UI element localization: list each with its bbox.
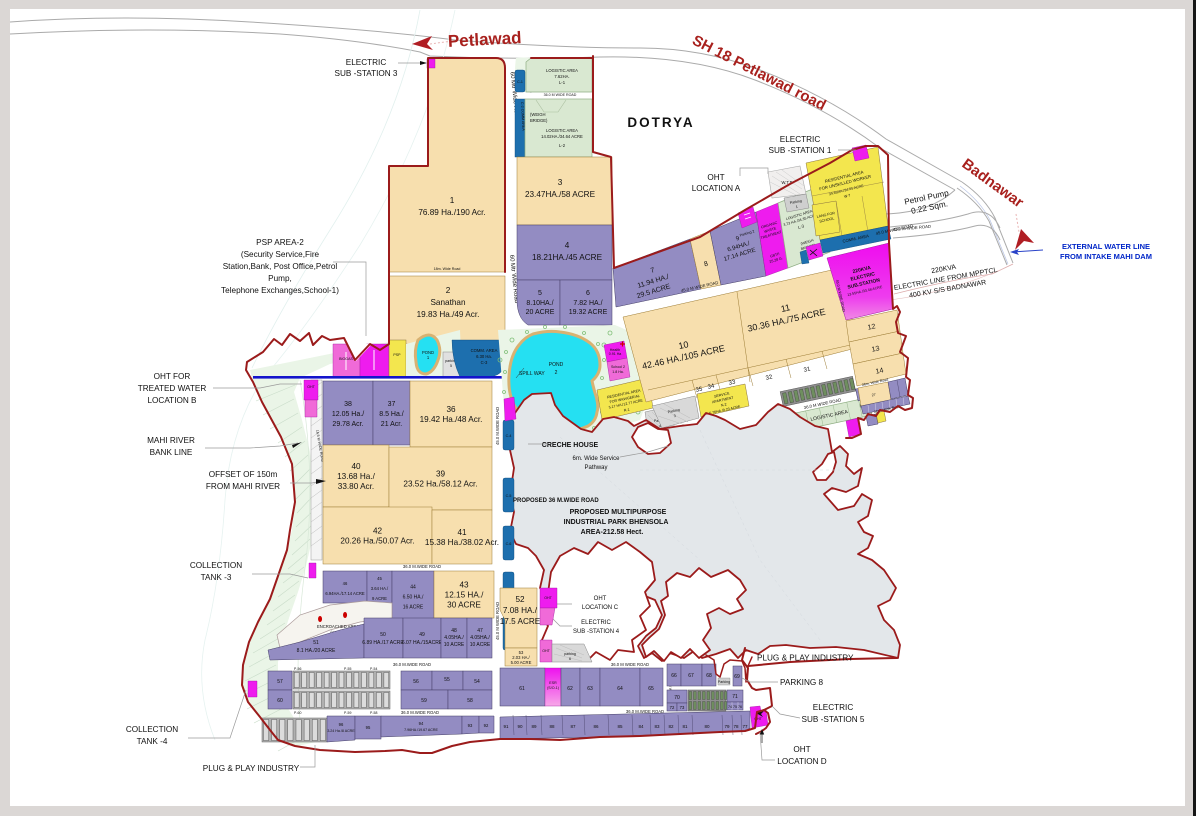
svg-text:ELECTRIC: ELECTRIC	[346, 58, 387, 67]
svg-text:67: 67	[688, 673, 694, 679]
svg-text:C-4: C-4	[506, 434, 512, 438]
svg-text:LOCATION C: LOCATION C	[582, 605, 619, 611]
svg-text:46: 46	[343, 581, 348, 586]
svg-text:5: 5	[450, 364, 452, 368]
svg-text:27: 27	[871, 393, 876, 398]
svg-text:71: 71	[732, 694, 738, 700]
svg-text:7.62HA.: 7.62HA.	[554, 74, 569, 79]
svg-text:7.96HA./19.67 ACRE: 7.96HA./19.67 ACRE	[404, 728, 438, 732]
svg-text:3.24 Ha./8 ACRE: 3.24 Ha./8 ACRE	[327, 729, 355, 733]
svg-text:CRECHE HOUSE: CRECHE HOUSE	[542, 442, 599, 449]
svg-text:P-54: P-54	[370, 667, 377, 671]
svg-text:Parking: Parking	[718, 680, 730, 684]
svg-text:80: 80	[704, 724, 710, 729]
svg-text:OHT: OHT	[594, 596, 607, 602]
svg-text:58: 58	[467, 698, 473, 704]
svg-text:59: 59	[421, 698, 427, 704]
svg-text:91: 91	[503, 724, 509, 729]
svg-text:45.0 M.WIDE ROAD: 45.0 M.WIDE ROAD	[495, 407, 500, 445]
svg-text:44: 44	[410, 585, 416, 591]
svg-text:74 75 76: 74 75 76	[728, 705, 742, 709]
svg-text:P-60: P-60	[294, 711, 301, 715]
svg-text:12.15 HA./: 12.15 HA./	[445, 591, 484, 600]
svg-text:COLLECTION: COLLECTION	[126, 725, 178, 734]
svg-text:SUB -STATION 5: SUB -STATION 5	[802, 715, 865, 724]
svg-text:8.10HA./: 8.10HA./	[526, 300, 553, 307]
svg-text:OHT: OHT	[544, 596, 552, 600]
svg-text:SUB -STATION 3: SUB -STATION 3	[335, 69, 398, 78]
svg-text:OHT FOR: OHT FOR	[154, 372, 191, 381]
svg-text:94: 94	[419, 721, 424, 726]
svg-text:69: 69	[734, 674, 740, 680]
svg-text:96: 96	[339, 722, 344, 727]
svg-text:23.47HA./58 ACRE: 23.47HA./58 ACRE	[525, 190, 596, 199]
svg-text:13.68 Ha./: 13.68 Ha./	[337, 472, 376, 481]
svg-text:76.89 Ha./190 Acr.: 76.89 Ha./190 Acr.	[418, 208, 485, 217]
svg-text:20 ACRE: 20 ACRE	[526, 309, 555, 316]
svg-text:PSP: PSP	[393, 353, 401, 357]
svg-text:EXTERNAL WATER LINE: EXTERNAL WATER LINE	[1062, 242, 1150, 251]
svg-text:16 ACRE: 16 ACRE	[403, 605, 424, 611]
svg-text:1: 1	[450, 196, 455, 205]
svg-text:4.05HA./: 4.05HA./	[470, 635, 490, 641]
svg-text:(Security Service,Fire: (Security Service,Fire	[241, 250, 320, 259]
svg-text:(WEIGH: (WEIGH	[530, 112, 546, 117]
svg-text:Station,Bank, Post Office,Petr: Station,Bank, Post Office,Petrol	[223, 262, 338, 271]
svg-text:47: 47	[477, 628, 483, 634]
svg-text:73: 73	[680, 705, 685, 710]
svg-text:2: 2	[446, 286, 451, 295]
svg-text:92: 92	[484, 723, 489, 728]
svg-text:56: 56	[413, 679, 419, 685]
svg-text:School 2: School 2	[611, 365, 625, 369]
svg-text:5.00 ACRE: 5.00 ACRE	[511, 660, 532, 665]
svg-text:L-2: L-2	[559, 143, 566, 148]
svg-text:36.0 M.WIDE ROAD: 36.0 M.WIDE ROAD	[393, 662, 431, 667]
svg-text:60: 60	[277, 698, 283, 704]
svg-text:36.0 M.WIDE ROAD: 36.0 M.WIDE ROAD	[401, 710, 439, 715]
svg-text:6.30 Ha.: 6.30 Ha.	[476, 354, 492, 359]
svg-text:72: 72	[670, 705, 675, 710]
svg-text:9 ACRE: 9 ACRE	[372, 596, 387, 601]
svg-text:30 ACRE: 30 ACRE	[447, 601, 481, 610]
svg-text:LOCATION D: LOCATION D	[777, 757, 827, 766]
svg-text:AREA-212.58 Hect.: AREA-212.58 Hect.	[581, 529, 644, 536]
svg-text:COLLECTION: COLLECTION	[190, 561, 242, 570]
svg-text:4.05HA./: 4.05HA./	[444, 635, 464, 641]
svg-text:1.8 Ha.: 1.8 Ha.	[612, 370, 624, 374]
svg-text:C-5: C-5	[506, 494, 512, 498]
svg-text:64: 64	[617, 686, 623, 692]
svg-text:38: 38	[344, 401, 352, 408]
svg-text:23.52 Ha./58.12 Acr.: 23.52 Ha./58.12 Acr.	[403, 480, 477, 489]
svg-text:18.21HA./45 ACRE: 18.21HA./45 ACRE	[532, 253, 603, 262]
svg-text:65: 65	[648, 686, 654, 692]
svg-text:89: 89	[531, 724, 537, 729]
svg-text:6.07 HA./15ACRE: 6.07 HA./15ACRE	[402, 640, 443, 646]
svg-text:ELECTRIC: ELECTRIC	[780, 135, 821, 144]
svg-text:PSP AREA-2: PSP AREA-2	[256, 238, 304, 247]
svg-text:LOCATION A: LOCATION A	[692, 184, 741, 193]
svg-text:C-3: C-3	[481, 360, 488, 365]
svg-text:20.26 Ha./50.07 Acr.: 20.26 Ha./50.07 Acr.	[340, 537, 414, 546]
svg-text:10 ACRE: 10 ACRE	[470, 642, 491, 648]
svg-text:37: 37	[388, 401, 396, 408]
svg-text:LOGISTIC AREA: LOGISTIC AREA	[546, 128, 578, 133]
svg-text:48: 48	[451, 628, 457, 634]
svg-text:P-56: P-56	[294, 667, 301, 671]
svg-text:0.91 Ha: 0.91 Ha	[609, 352, 622, 356]
svg-text:C-1: C-1	[517, 80, 523, 84]
svg-text:39: 39	[436, 470, 446, 479]
svg-text:BRIDGE): BRIDGE)	[530, 118, 548, 123]
svg-text:P-58: P-58	[370, 711, 377, 715]
svg-text:18m. Wide Road: 18m. Wide Road	[434, 267, 461, 271]
svg-text:52: 52	[515, 595, 525, 604]
svg-text:41: 41	[457, 528, 467, 537]
svg-text:15.38 Ha./38.02 Acr.: 15.38 Ha./38.02 Acr.	[425, 538, 499, 547]
svg-text:SPILL WAY: SPILL WAY	[519, 371, 545, 377]
svg-text:61: 61	[519, 686, 525, 692]
svg-text:2: 2	[555, 370, 558, 376]
svg-text:86: 86	[593, 724, 599, 729]
svg-text:81: 81	[682, 724, 688, 729]
svg-text:ESR: ESR	[549, 681, 557, 685]
svg-text:50: 50	[380, 632, 386, 638]
svg-text:79: 79	[724, 724, 730, 729]
svg-text:PLUG & PLAY INDUSTRY: PLUG & PLAY INDUSTRY	[757, 654, 854, 663]
svg-text:6.89 HA./17 ACRE: 6.89 HA./17 ACRE	[362, 640, 404, 646]
svg-text:PARKING 8: PARKING 8	[780, 678, 824, 687]
svg-text:FROM INTAKE MAHI DAM: FROM INTAKE MAHI DAM	[1060, 252, 1152, 261]
svg-text:TANK -3: TANK -3	[201, 573, 232, 582]
svg-text:90: 90	[517, 724, 523, 729]
svg-text:19.32 ACRE: 19.32 ACRE	[569, 309, 608, 316]
svg-text:21 Acr.: 21 Acr.	[381, 421, 402, 428]
svg-text:8.5 Ha./: 8.5 Ha./	[379, 411, 404, 418]
svg-text:45: 45	[377, 576, 382, 581]
svg-text:17.5 ACRE: 17.5 ACRE	[500, 617, 541, 626]
svg-text:42: 42	[373, 527, 383, 536]
svg-text:12.05 Ha./: 12.05 Ha./	[332, 411, 364, 418]
svg-text:51: 51	[313, 640, 319, 646]
svg-text:19.42 Ha./48 Acr.: 19.42 Ha./48 Acr.	[420, 415, 483, 424]
svg-text:Pathway: Pathway	[584, 465, 607, 471]
svg-text:63: 63	[587, 686, 593, 692]
svg-text:PLUG & PLAY INDUSTRY: PLUG & PLAY INDUSTRY	[203, 764, 300, 773]
svg-text:SUB -STATION 4: SUB -STATION 4	[573, 629, 620, 635]
svg-text:6.94HA./17.14 ACRE: 6.94HA./17.14 ACRE	[325, 591, 365, 596]
svg-text:55: 55	[444, 677, 450, 683]
svg-text:87: 87	[570, 724, 576, 729]
svg-text:Petlawad: Petlawad	[447, 28, 522, 51]
svg-text:57: 57	[277, 679, 283, 685]
svg-text:Sanathan: Sanathan	[430, 298, 466, 307]
svg-text:L-1: L-1	[559, 80, 566, 85]
svg-text:TREATED WATER: TREATED WATER	[138, 384, 207, 393]
svg-text:4: 4	[565, 241, 570, 250]
svg-text:LOGISTIC AREA: LOGISTIC AREA	[546, 68, 578, 73]
svg-text:36.0 M WIDE ROAD: 36.0 M WIDE ROAD	[611, 662, 649, 667]
svg-text:DOTRYA: DOTRYA	[627, 115, 694, 130]
svg-text:36.0 M WIDE ROAD: 36.0 M WIDE ROAD	[544, 93, 577, 97]
svg-text:BANK LINE: BANK LINE	[150, 448, 193, 457]
svg-text:ELECTRIC: ELECTRIC	[581, 620, 611, 626]
svg-text:68: 68	[706, 673, 712, 679]
svg-text:88: 88	[549, 724, 555, 729]
svg-text:ELECTRIC: ELECTRIC	[813, 703, 854, 712]
svg-text:8.1 HA./20 ACRE: 8.1 HA./20 ACRE	[297, 648, 336, 654]
svg-text:6.50 HA./: 6.50 HA./	[403, 595, 424, 601]
svg-text:62: 62	[567, 686, 573, 692]
svg-text:84: 84	[638, 724, 644, 729]
svg-text:PROPOSED 36 M.WIDE ROAD: PROPOSED 36 M.WIDE ROAD	[513, 498, 599, 504]
svg-text:OHT: OHT	[793, 745, 810, 754]
svg-text:Pump,: Pump,	[268, 274, 292, 283]
svg-text:BIOGAS: BIOGAS	[339, 357, 353, 361]
svg-text:POND: POND	[549, 362, 564, 368]
svg-text:OHT: OHT	[307, 385, 315, 389]
svg-text:P-55: P-55	[344, 667, 351, 671]
svg-text:49: 49	[419, 632, 425, 638]
svg-text:OFFSET OF 150m: OFFSET OF 150m	[209, 470, 278, 479]
svg-text:36.0 M.WIDE ROAD: 36.0 M.WIDE ROAD	[403, 564, 441, 569]
svg-text:6: 6	[586, 290, 590, 297]
svg-text:43: 43	[459, 581, 469, 590]
svg-text:FROM MAHI RIVER: FROM MAHI RIVER	[206, 482, 280, 491]
svg-text:78: 78	[733, 724, 739, 729]
svg-text:PROPOSED MULTIPURPOSE: PROPOSED MULTIPURPOSE	[570, 509, 667, 516]
svg-text:P-59: P-59	[344, 711, 351, 715]
svg-text:OHT: OHT	[542, 649, 550, 653]
svg-text:INDUSTRIAL PARK BHENSOLA: INDUSTRIAL PARK BHENSOLA	[564, 519, 669, 526]
svg-text:70: 70	[674, 695, 680, 701]
svg-text:7.08 HA./: 7.08 HA./	[503, 606, 538, 615]
svg-text:5: 5	[538, 290, 542, 297]
svg-text:7.82 HA./: 7.82 HA./	[573, 300, 602, 307]
svg-text:93: 93	[468, 723, 473, 728]
svg-text:66: 66	[671, 673, 677, 679]
svg-text:3.64 HA./: 3.64 HA./	[371, 586, 389, 591]
svg-text:10: 10	[678, 339, 690, 351]
svg-text:parking: parking	[564, 652, 576, 656]
svg-text:95: 95	[366, 725, 371, 730]
svg-text:19.83 Ha./49 Acr.: 19.83 Ha./49 Acr.	[417, 310, 480, 319]
svg-text:LOCATION B: LOCATION B	[148, 396, 198, 405]
svg-text:TANK -4: TANK -4	[137, 737, 168, 746]
svg-text:OHT: OHT	[707, 173, 724, 182]
svg-text:54: 54	[474, 679, 480, 685]
svg-text:10 ACRE: 10 ACRE	[444, 642, 465, 648]
svg-text:3: 3	[558, 178, 563, 187]
svg-text:77: 77	[742, 724, 748, 729]
svg-text:Telephone Exchanges,School-1): Telephone Exchanges,School-1)	[221, 286, 339, 295]
svg-text:29.78 Acr.: 29.78 Acr.	[332, 421, 363, 428]
svg-text:6: 6	[569, 657, 571, 661]
svg-text:COMM. AREA: COMM. AREA	[471, 348, 498, 353]
svg-text:MAHI RIVER: MAHI RIVER	[147, 436, 195, 445]
svg-text:6m. Wide Service: 6m. Wide Service	[572, 456, 620, 462]
svg-text:83: 83	[654, 724, 660, 729]
svg-text:36: 36	[446, 405, 456, 414]
svg-text:C-6: C-6	[506, 542, 512, 546]
svg-text:(S/O-1): (S/O-1)	[547, 686, 559, 690]
svg-text:SUB -STATION 1: SUB -STATION 1	[769, 146, 832, 155]
svg-text:82: 82	[668, 724, 674, 729]
svg-text:85: 85	[617, 724, 623, 729]
svg-text:33.80 Acr.: 33.80 Acr.	[338, 482, 374, 491]
svg-text:40: 40	[351, 462, 361, 471]
svg-text:14.02HA./34.64 ACRE: 14.02HA./34.64 ACRE	[541, 134, 583, 139]
